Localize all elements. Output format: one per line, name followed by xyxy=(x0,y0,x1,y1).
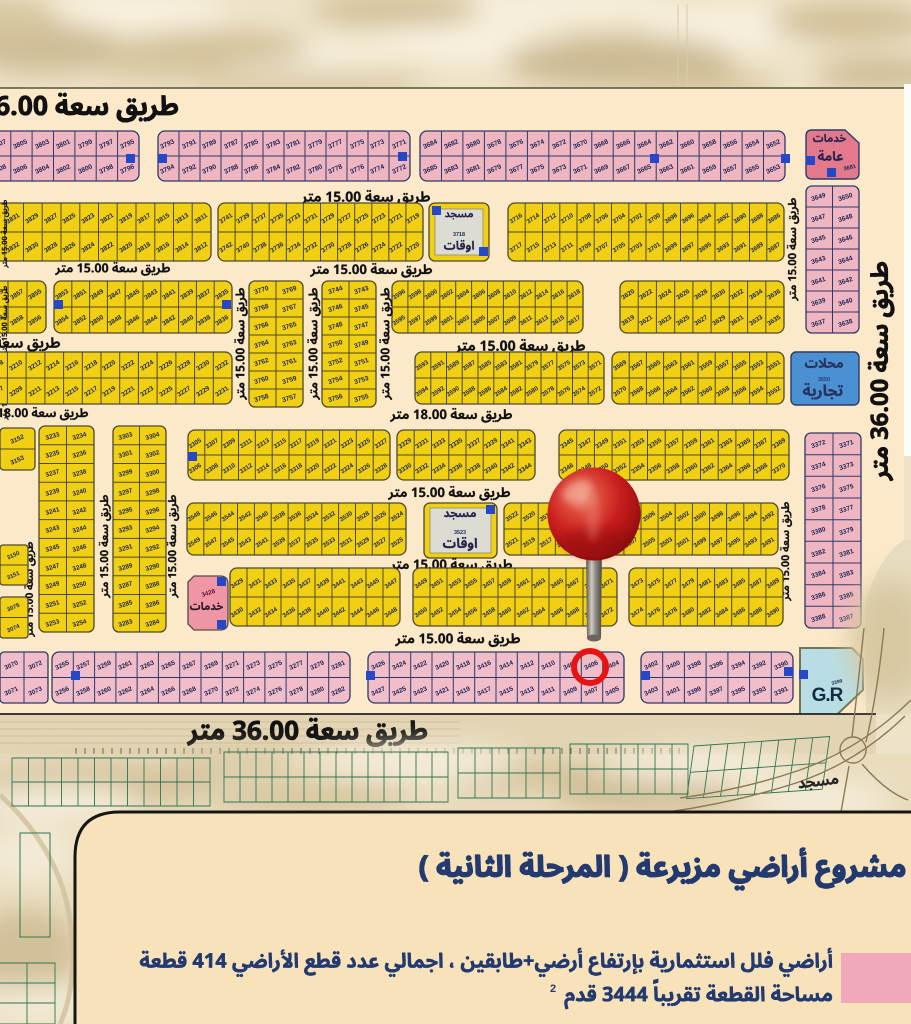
svg-text:2: 2 xyxy=(550,983,556,995)
svg-text:3550: 3550 xyxy=(818,377,830,383)
svg-text:G.R: G.R xyxy=(812,685,844,706)
svg-text:3718: 3718 xyxy=(453,232,465,238)
svg-text:3523: 3523 xyxy=(454,530,466,536)
